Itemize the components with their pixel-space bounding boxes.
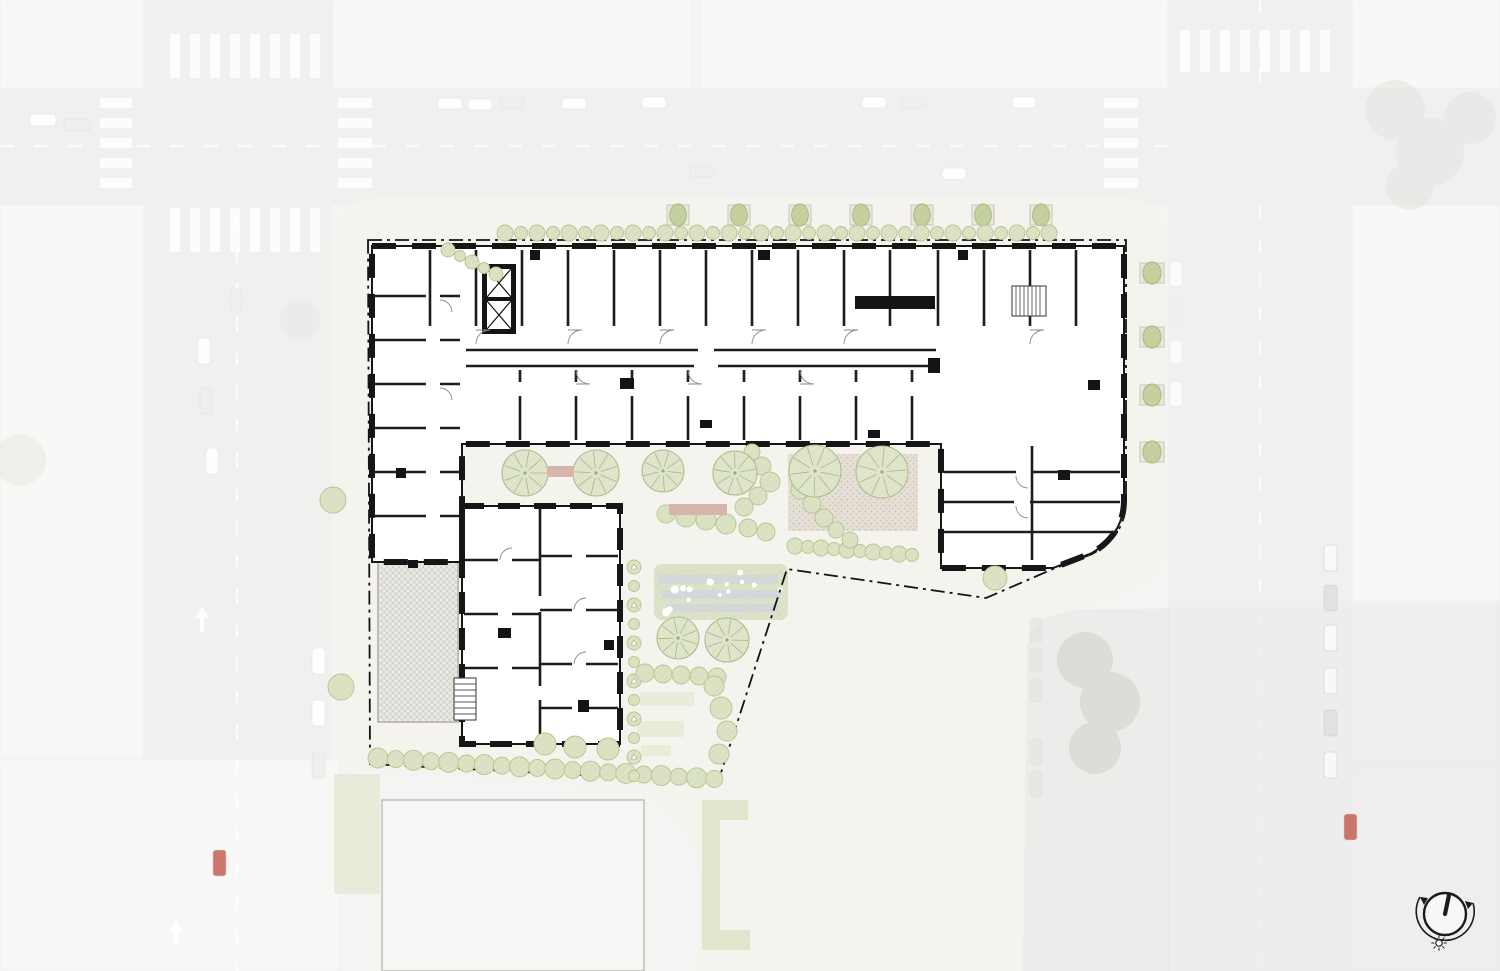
tree-crown-texture (914, 204, 931, 226)
shrub-icon (455, 251, 466, 262)
shrub-icon (707, 227, 720, 240)
stepping-stone (726, 589, 730, 593)
shrub-texture (489, 267, 503, 281)
shrub-texture (675, 227, 688, 240)
shrub-icon (643, 227, 656, 240)
wall-block (758, 250, 770, 260)
shrub-texture (963, 227, 976, 240)
stepping-stone (671, 585, 679, 593)
shrub-texture (709, 744, 729, 764)
shrub-icon (629, 695, 640, 706)
shrub-texture (735, 498, 753, 516)
stepping-stone (740, 580, 744, 584)
car-icon (1324, 710, 1337, 736)
car-icon (213, 850, 226, 876)
shrub-icon (813, 540, 829, 556)
shrub-texture (545, 759, 565, 779)
shrub-icon (564, 762, 581, 779)
shrub-texture (320, 487, 346, 513)
shrub-texture (945, 225, 961, 241)
shrub-texture (651, 766, 671, 786)
shrub-texture (465, 255, 479, 269)
shrub-icon (529, 759, 546, 776)
shrub-texture (717, 721, 737, 741)
street-tree-icon (728, 204, 750, 226)
stepping-stone (737, 570, 743, 576)
shrub-texture (547, 227, 560, 240)
shrub-texture (721, 225, 737, 241)
shrub-icon (636, 664, 654, 682)
shrub-icon (704, 676, 724, 696)
shrub-icon (842, 532, 858, 548)
shrub-icon (865, 544, 881, 560)
shrub-icon (629, 657, 640, 668)
shrub-texture (849, 225, 865, 241)
shrub-texture (1027, 227, 1040, 240)
shrub-icon (328, 674, 354, 700)
garden-gravel-band (666, 604, 778, 612)
shrub-texture (757, 523, 775, 541)
shrub-texture (995, 227, 1008, 240)
shrub-icon (739, 519, 757, 537)
shrub-icon (802, 541, 815, 554)
shrub-texture (657, 225, 673, 241)
car-icon (1030, 618, 1042, 642)
shrub-icon (785, 225, 801, 241)
sun-core (1436, 940, 1442, 946)
shrub-icon (611, 227, 624, 240)
shrub-icon (906, 549, 919, 562)
shrub-icon (787, 538, 803, 554)
shrub-texture (534, 733, 556, 755)
shrub-icon (580, 761, 600, 781)
wall-block (1088, 380, 1100, 390)
car-icon (1030, 772, 1042, 796)
shrub-icon (995, 227, 1008, 240)
shrub-texture (771, 227, 784, 240)
shrub-texture (629, 733, 640, 744)
shrub-texture (739, 519, 757, 537)
street-tree-icon (667, 204, 689, 226)
shrub-icon (458, 755, 475, 772)
wall-block (604, 640, 614, 650)
shrub-icon (561, 225, 577, 241)
shrub-icon (709, 744, 729, 764)
street-tree-icon (1030, 204, 1052, 226)
shrub-texture (710, 697, 732, 719)
shrub-texture (817, 225, 833, 241)
shrub-icon (1009, 225, 1025, 241)
car-icon (1030, 648, 1042, 672)
shrub-icon (320, 487, 346, 513)
wall-block (855, 296, 935, 309)
tree-trunk (676, 636, 679, 639)
lawn-strip (640, 692, 694, 706)
shrub-icon (474, 755, 494, 775)
shrub-texture (899, 227, 912, 240)
shrub-icon (735, 498, 753, 516)
shrub-texture (813, 540, 829, 556)
shrub-icon (689, 225, 705, 241)
shrub-texture (1041, 225, 1057, 241)
shrub-icon (629, 619, 640, 630)
shrub-icon (803, 495, 821, 513)
shrub-texture (706, 770, 723, 787)
shrub-texture (787, 538, 803, 554)
shrub-icon (579, 227, 592, 240)
shrub-texture (479, 263, 490, 274)
shrub-icon (597, 738, 619, 760)
stair-icon (454, 678, 476, 720)
shrub-icon (716, 514, 736, 534)
shrub-icon (593, 225, 609, 241)
shrub-icon (629, 771, 640, 782)
stepping-stone (687, 598, 691, 602)
stepping-stone (706, 578, 713, 585)
shrub-icon (757, 523, 775, 541)
shrub-icon (849, 225, 865, 241)
shrub-texture (689, 225, 705, 241)
shrub-icon (881, 225, 897, 241)
street-tree-icon (850, 204, 872, 226)
shrub-texture (441, 243, 455, 257)
shrub-texture (368, 748, 388, 768)
shrub-icon (465, 255, 479, 269)
shrub-texture (510, 757, 530, 777)
site-plan-screenshot (0, 0, 1500, 971)
wall-block (578, 700, 589, 712)
wall-block (530, 250, 540, 260)
wall-block (958, 250, 968, 260)
tree-trunk (725, 638, 728, 641)
shrub-texture (1009, 225, 1025, 241)
shrub-icon (534, 733, 556, 755)
shrub-icon (977, 225, 993, 241)
shrub-icon (913, 225, 929, 241)
shrub-texture (704, 676, 724, 696)
shrub-icon (931, 227, 944, 240)
shrub-icon (753, 225, 769, 241)
street-tree-icon (789, 204, 811, 226)
street-tree-icon (1140, 326, 1164, 348)
tree-icon (502, 450, 548, 496)
shrub-texture (564, 762, 581, 779)
shrub-icon (945, 225, 961, 241)
shrub-texture (564, 736, 586, 758)
wall-block (928, 358, 940, 373)
shrub-texture (802, 541, 815, 554)
tree-trunk (813, 469, 816, 472)
stepping-stone (752, 583, 757, 588)
shrub-texture (629, 657, 640, 668)
shrub-icon (1041, 225, 1057, 241)
tree-icon (789, 445, 841, 497)
shrub-texture (629, 581, 640, 592)
shrub-icon (441, 243, 455, 257)
tree-trunk (661, 469, 664, 472)
lawn-patch (334, 774, 380, 894)
car-icon (1324, 625, 1337, 651)
site-plan-canvas (0, 0, 1500, 971)
tree-trunk (523, 471, 526, 474)
shrub-icon (675, 227, 688, 240)
tree-crown-texture (792, 204, 809, 226)
shrub-texture (579, 227, 592, 240)
shrub-texture (423, 753, 440, 770)
shrub-texture (716, 514, 736, 534)
street-tree-icon (972, 204, 994, 226)
stair-icon (1012, 286, 1046, 316)
tree-icon (642, 450, 684, 492)
shrub-icon (899, 227, 912, 240)
street-tree-icon (1140, 262, 1164, 284)
wall-block (700, 420, 712, 428)
shrub-icon (489, 267, 503, 281)
tree-crown-texture (1143, 326, 1161, 348)
shrub-icon (629, 733, 640, 744)
shrub-texture (458, 755, 475, 772)
shrub-icon (672, 666, 690, 684)
shrub-icon (654, 665, 672, 683)
shrub-icon (651, 766, 671, 786)
shrub-texture (328, 674, 354, 700)
neighbor-building (382, 800, 644, 971)
bench (547, 466, 573, 477)
shrub-icon (547, 227, 560, 240)
lawn-strip (637, 721, 684, 737)
shrub-icon (803, 227, 816, 240)
shrub-texture (387, 751, 404, 768)
shrub-icon (963, 227, 976, 240)
garden-gravel-band (658, 575, 778, 584)
tree-trunk (594, 471, 597, 474)
tree-crown-texture (731, 204, 748, 226)
shrub-icon (493, 757, 510, 774)
tree-trunk (880, 470, 883, 473)
shrub-texture (493, 757, 510, 774)
wall-block (396, 468, 406, 478)
tree-icon (705, 618, 749, 662)
terrace-hatch (378, 562, 458, 722)
shrub-texture (670, 768, 687, 785)
car-icon (1030, 740, 1042, 764)
shrub-texture (629, 771, 640, 782)
shrub-texture (865, 544, 881, 560)
shrub-texture (803, 227, 816, 240)
wall-block (408, 560, 418, 568)
stepping-stone (725, 582, 729, 586)
shrub-icon (657, 225, 673, 241)
tree-crown-texture (853, 204, 870, 226)
shrub-icon (771, 227, 784, 240)
car-icon (1324, 545, 1337, 571)
shrub-icon (828, 522, 844, 538)
wall-block (1058, 470, 1070, 480)
sun-icon (1431, 935, 1446, 950)
shrub-texture (515, 227, 528, 240)
planted-garden (654, 564, 788, 620)
shrub-texture (785, 225, 801, 241)
shrub-icon (510, 757, 530, 777)
shrub-icon (387, 751, 404, 768)
tree-trunk (733, 471, 736, 474)
shrub-texture (403, 750, 423, 770)
tree-icon (713, 451, 757, 495)
shrub-texture (880, 547, 893, 560)
shrub-icon (835, 227, 848, 240)
shrub-icon (891, 546, 907, 562)
shrub-texture (977, 225, 993, 241)
shrub-icon (1027, 227, 1040, 240)
shrub-icon (687, 768, 707, 788)
shrub-icon (983, 566, 1007, 590)
wall-block (620, 378, 634, 389)
car-icon (1030, 678, 1042, 702)
shrub-icon (739, 227, 752, 240)
shrub-texture (580, 761, 600, 781)
shrub-texture (828, 543, 841, 556)
car-icon (1324, 752, 1337, 778)
tree-crown-texture (975, 204, 992, 226)
shrub-texture (828, 522, 844, 538)
tree-crown-texture (1143, 441, 1161, 463)
shrub-texture (672, 666, 690, 684)
shrub-texture (913, 225, 929, 241)
shrub-texture (636, 664, 654, 682)
car-icon (1344, 814, 1357, 840)
shrub-texture (597, 738, 619, 760)
stepping-stone (662, 608, 670, 616)
shrub-texture (474, 755, 494, 775)
shrub-icon (529, 225, 545, 241)
shrub-texture (891, 546, 907, 562)
shrub-icon (670, 768, 687, 785)
shrub-icon (867, 227, 880, 240)
shrub-texture (707, 227, 720, 240)
shrub-icon (710, 697, 732, 719)
shrub-texture (439, 752, 459, 772)
street-tree-icon (911, 204, 933, 226)
tree-crown-texture (670, 204, 687, 226)
shrub-icon (629, 581, 640, 592)
shrub-icon (817, 225, 833, 241)
wall-block (498, 628, 511, 638)
shrub-texture (753, 225, 769, 241)
street-tree-icon (1140, 384, 1164, 406)
stepping-stone (680, 585, 686, 591)
tree-crown-texture (1033, 204, 1050, 226)
stepping-stone (718, 593, 722, 597)
shrub-icon (721, 225, 737, 241)
car-icon (1324, 668, 1337, 694)
bench (669, 504, 727, 515)
shrub-icon (828, 543, 841, 556)
tree-crown-texture (1143, 384, 1161, 406)
shrub-icon (423, 753, 440, 770)
shrub-texture (835, 227, 848, 240)
shrub-icon (368, 748, 388, 768)
shrub-texture (455, 251, 466, 262)
shrub-texture (906, 549, 919, 562)
shrub-icon (497, 225, 513, 241)
tree-icon (856, 446, 908, 498)
shrub-texture (983, 566, 1007, 590)
shrub-texture (643, 227, 656, 240)
shrub-texture (593, 225, 609, 241)
wall-block (868, 430, 880, 438)
tree-icon (657, 617, 699, 659)
tree-icon (573, 450, 619, 496)
shrub-texture (629, 695, 640, 706)
shrub-texture (881, 225, 897, 241)
shrub-texture (497, 225, 513, 241)
street-tree-icon (1140, 441, 1164, 463)
shrub-icon (600, 764, 617, 781)
shrub-icon (439, 752, 459, 772)
shrub-texture (561, 225, 577, 241)
shrub-icon (625, 225, 641, 241)
shrub-texture (629, 619, 640, 630)
shrub-texture (529, 225, 545, 241)
shrub-icon (545, 759, 565, 779)
stepping-stone (687, 586, 693, 592)
shrub-icon (515, 227, 528, 240)
shrub-texture (625, 225, 641, 241)
shrub-icon (403, 750, 423, 770)
shrub-texture (611, 227, 624, 240)
shrub-icon (717, 721, 737, 741)
shrub-texture (803, 495, 821, 513)
shrub-texture (600, 764, 617, 781)
shrub-icon (564, 736, 586, 758)
shrub-icon (706, 770, 723, 787)
shrub-texture (931, 227, 944, 240)
shrub-texture (654, 665, 672, 683)
shrub-icon (880, 547, 893, 560)
shrub-texture (867, 227, 880, 240)
lawn-strip (641, 745, 671, 756)
shrub-texture (687, 768, 707, 788)
shrub-texture (529, 759, 546, 776)
shrub-icon (479, 263, 490, 274)
shrub-texture (739, 227, 752, 240)
tree-crown-texture (1143, 262, 1161, 284)
shrub-texture (842, 532, 858, 548)
car-icon (1324, 585, 1337, 611)
